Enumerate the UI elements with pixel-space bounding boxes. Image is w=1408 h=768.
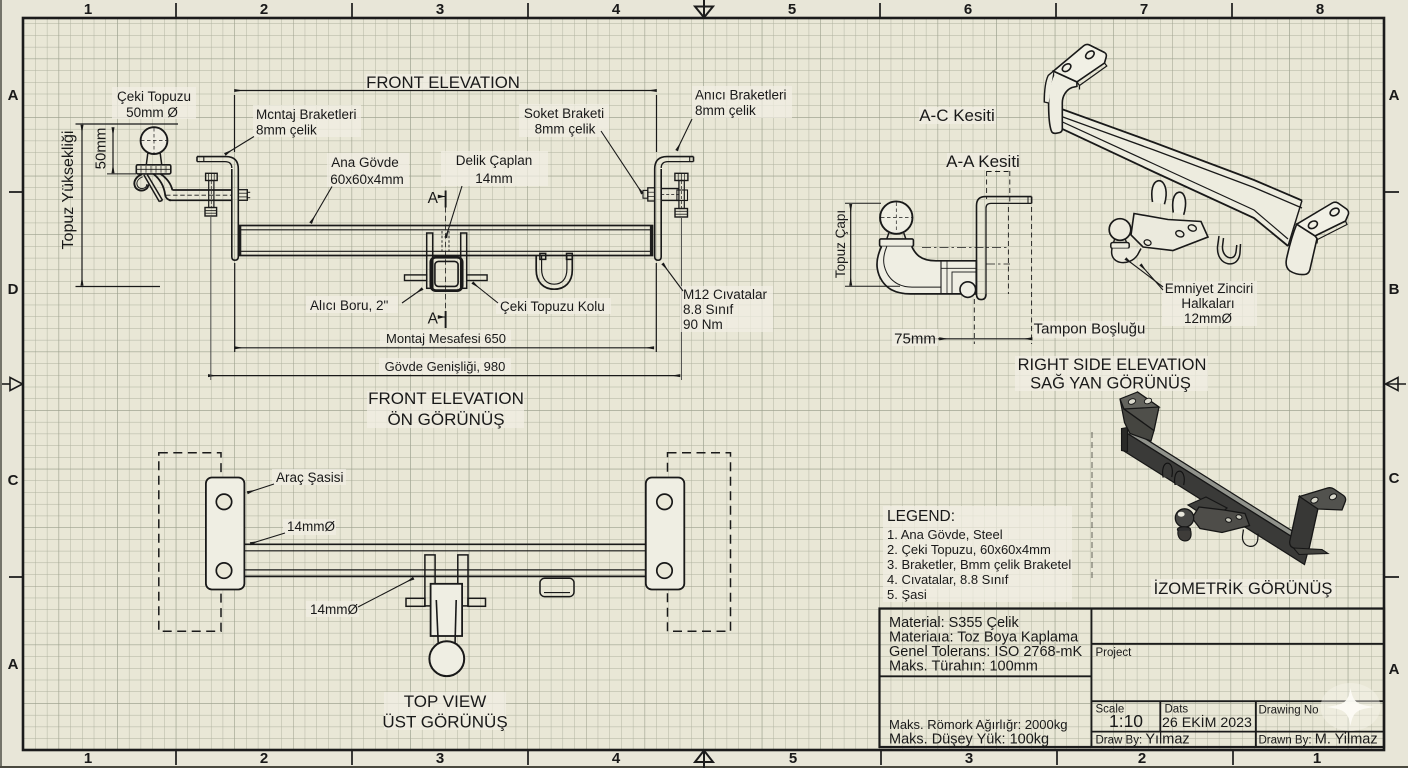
svg-text:B: B — [1389, 281, 1400, 298]
svg-text:Project: Project — [1096, 647, 1133, 659]
svg-text:6: 6 — [964, 1, 972, 18]
svg-text:Topuz Yüksekliği: Topuz Yüksekliği — [60, 131, 77, 250]
svg-text:5: 5 — [789, 750, 797, 767]
svg-text:3: 3 — [965, 750, 973, 767]
svg-text:Soket Braketi: Soket Braketi — [524, 106, 604, 121]
svg-text:4. Cıvatalar, 8.8 Sınıf: 4. Cıvatalar, 8.8 Sınıf — [887, 572, 1009, 587]
svg-text:Montaj Mesafesi 650: Montaj Mesafesi 650 — [386, 331, 506, 346]
svg-text:3. Braketler, Bmm çelik Braket: 3. Braketler, Bmm çelik Braketel — [887, 557, 1071, 572]
svg-text:Delik Çaplan: Delik Çaplan — [456, 153, 533, 168]
svg-text:Maks. Römork Ağırlığr: 2000kg: Maks. Römork Ağırlığr: 2000kg — [889, 717, 1067, 732]
svg-text:Gövde Genişliği, 980: Gövde Genişliği, 980 — [385, 359, 506, 374]
svg-text:Alıcı Boru, 2": Alıcı Boru, 2" — [310, 298, 389, 313]
svg-text:A: A — [8, 656, 19, 673]
svg-text:50mm Ø: 50mm Ø — [126, 105, 178, 120]
svg-text:5. Şasi: 5. Şasi — [887, 587, 927, 602]
svg-text:ÜST GÖRÜNÜŞ: ÜST GÖRÜNÜŞ — [382, 713, 507, 732]
svg-text:Drawing No: Drawing No — [1259, 705, 1319, 717]
svg-text:Maks. Düşey Yük: 100kg: Maks. Düşey Yük: 100kg — [889, 732, 1049, 748]
svg-text:14mm: 14mm — [475, 171, 513, 186]
svg-text:Çeki Topuzu: Çeki Topuzu — [117, 89, 191, 104]
svg-text:1:10: 1:10 — [1109, 711, 1143, 731]
svg-text:8mm çelik: 8mm çelik — [695, 103, 756, 118]
svg-text:Ana Gövde: Ana Gövde — [331, 155, 399, 170]
svg-text:14mmØ: 14mmØ — [287, 519, 336, 534]
svg-text:C: C — [8, 472, 19, 489]
svg-text:FRONT ELEVATION: FRONT ELEVATION — [366, 73, 520, 92]
svg-text:1: 1 — [1313, 750, 1321, 767]
svg-text:3: 3 — [436, 750, 444, 767]
svg-text:2. Çeki Topuzu, 60x60x4mm: 2. Çeki Topuzu, 60x60x4mm — [887, 542, 1051, 557]
svg-text:Çeki Topuzu Kolu: Çeki Topuzu Kolu — [500, 299, 605, 314]
svg-text:2: 2 — [260, 1, 268, 18]
svg-text:4: 4 — [612, 750, 621, 767]
svg-text:90 Nm: 90 Nm — [683, 317, 723, 332]
svg-text:Topuz Çapı: Topuz Çapı — [833, 210, 848, 278]
svg-text:RIGHT SIDE ELEVATION: RIGHT SIDE ELEVATION — [1018, 356, 1207, 374]
svg-text:TOP VIEW: TOP VIEW — [404, 692, 487, 711]
svg-text:1: 1 — [84, 1, 92, 18]
svg-text:5: 5 — [788, 1, 796, 18]
svg-text:Halkaları: Halkaları — [1181, 296, 1234, 311]
svg-text:2: 2 — [1138, 750, 1146, 767]
svg-text:60x60x4mm: 60x60x4mm — [330, 172, 404, 187]
svg-text:14mmØ: 14mmØ — [310, 602, 359, 617]
svg-text:26 EKİM 2023: 26 EKİM 2023 — [1162, 713, 1252, 731]
svg-text:75mm: 75mm — [894, 331, 936, 348]
svg-text:Anıcı Braketleri: Anıcı Braketleri — [695, 88, 787, 103]
svg-text:Tampon Boşluğu: Tampon Boşluğu — [1034, 321, 1146, 338]
svg-text:SAĞ YAN GÖRÜNÜŞ: SAĞ YAN GÖRÜNÜŞ — [1030, 374, 1191, 393]
svg-text:Mcntaj Braketleri: Mcntaj Braketleri — [256, 107, 357, 122]
svg-text:Emniyet Zinciri: Emniyet Zinciri — [1165, 281, 1254, 296]
svg-text:LEGEND:: LEGEND: — [887, 508, 955, 525]
svg-text:Drawn By: M. Yilmaz: Drawn By: M. Yilmaz — [1259, 732, 1378, 748]
svg-text:1. Ana Gövde, Steel: 1. Ana Gövde, Steel — [887, 527, 1003, 542]
svg-text:A: A — [8, 87, 19, 104]
svg-text:50mm: 50mm — [93, 128, 110, 170]
svg-text:ÖN GÖRÜNÜŞ: ÖN GÖRÜNÜŞ — [387, 410, 504, 429]
svg-text:D: D — [8, 281, 19, 298]
svg-text:1: 1 — [84, 750, 92, 767]
svg-text:A-A Kesiti: A-A Kesiti — [946, 152, 1020, 171]
svg-text:A: A — [1389, 87, 1400, 104]
svg-text:İZOMETRİK GÖRÜNÜŞ: İZOMETRİK GÖRÜNÜŞ — [1154, 579, 1333, 598]
svg-text:A: A — [1389, 661, 1400, 678]
svg-text:12mmØ: 12mmØ — [1184, 311, 1233, 326]
svg-text:M12 Cıvatalar: M12 Cıvatalar — [683, 287, 768, 302]
svg-text:A: A — [428, 311, 439, 328]
svg-text:C: C — [1389, 470, 1400, 487]
svg-text:A-C Kesiti: A-C Kesiti — [919, 106, 995, 125]
svg-text:4: 4 — [612, 1, 621, 18]
svg-text:8mm çelik: 8mm çelik — [535, 122, 596, 137]
svg-text:A: A — [428, 190, 439, 207]
svg-text:2: 2 — [260, 750, 268, 767]
svg-text:7: 7 — [1140, 1, 1148, 18]
svg-text:FRONT ELEVATION: FRONT ELEVATION — [368, 389, 524, 408]
svg-text:8: 8 — [1316, 1, 1324, 18]
svg-text:8mm çelik: 8mm çelik — [256, 123, 317, 138]
svg-text:Dats: Dats — [1165, 704, 1189, 716]
svg-text:Maks. Türahın: 100mm: Maks. Türahın: 100mm — [889, 659, 1038, 675]
svg-text:8.8 Sınıf: 8.8 Sınıf — [683, 302, 734, 317]
svg-text:3: 3 — [436, 1, 444, 18]
svg-text:Araç Şasisi: Araç Şasisi — [276, 470, 344, 485]
svg-text:Draw By: Yılmaz: Draw By: Yılmaz — [1096, 732, 1190, 748]
